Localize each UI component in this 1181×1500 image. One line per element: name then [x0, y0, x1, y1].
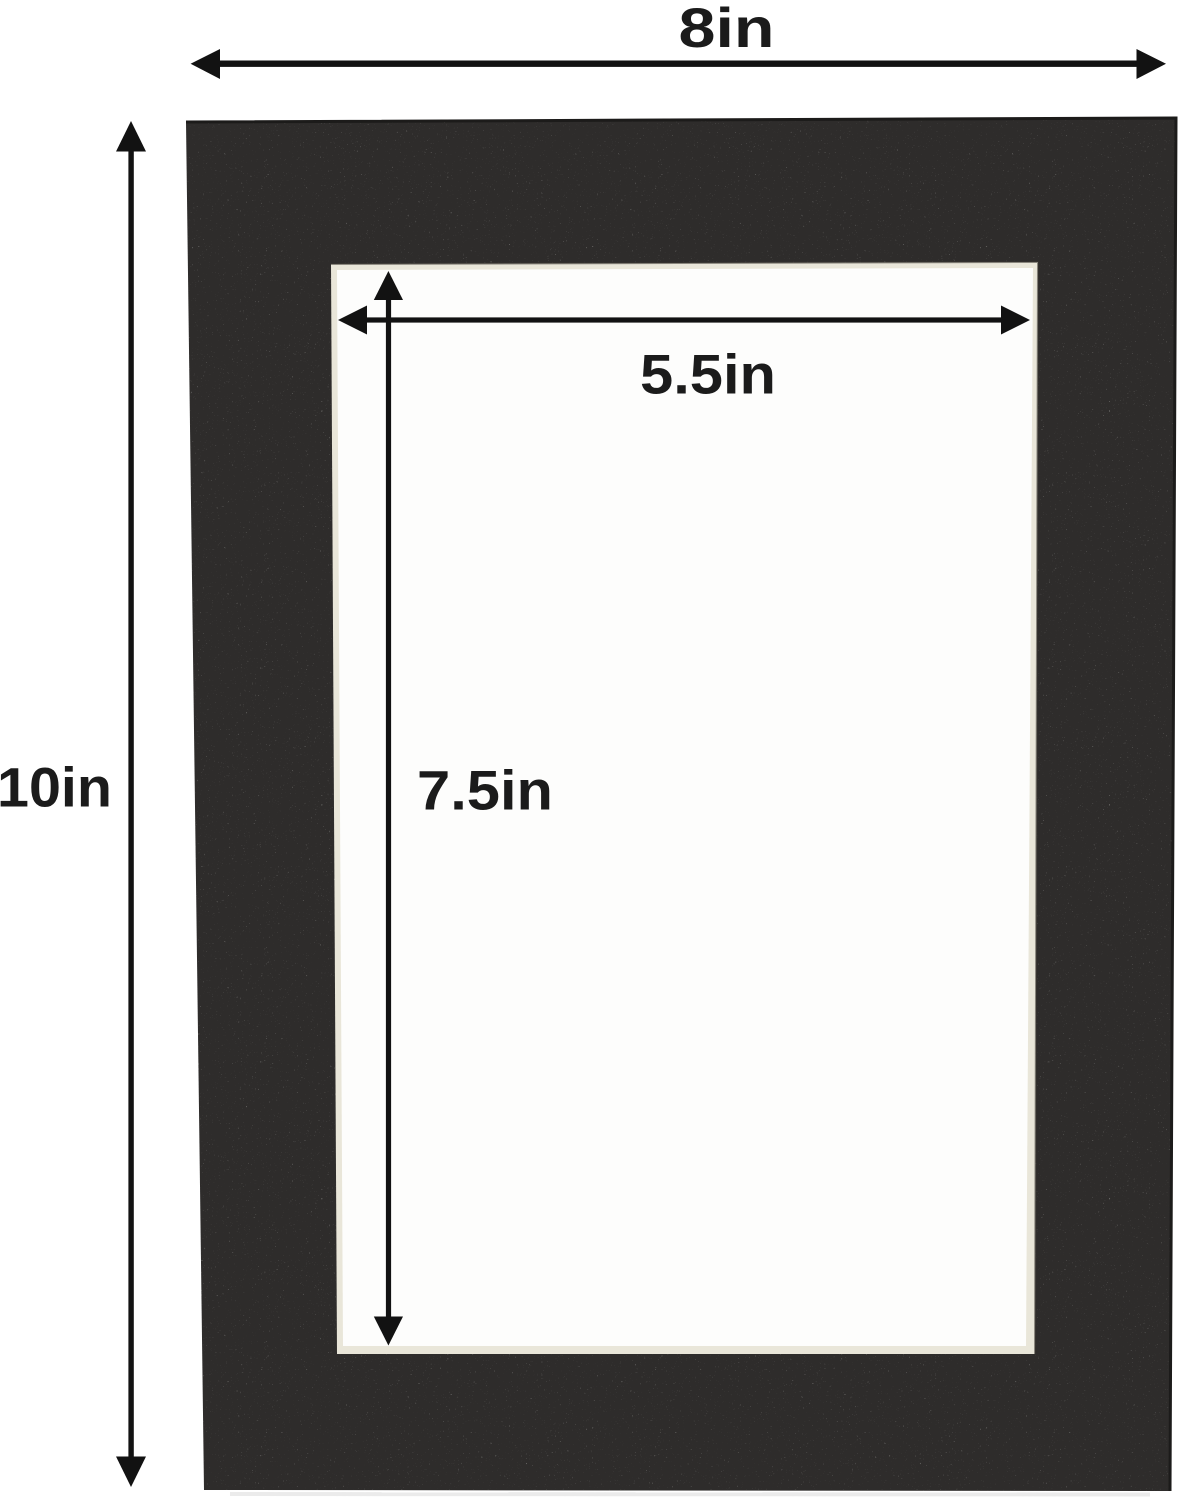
- svg-text:5.5in: 5.5in: [640, 343, 776, 406]
- svg-text:10in: 10in: [0, 756, 112, 819]
- svg-text:8in: 8in: [679, 0, 775, 59]
- svg-text:7.5in: 7.5in: [417, 759, 553, 822]
